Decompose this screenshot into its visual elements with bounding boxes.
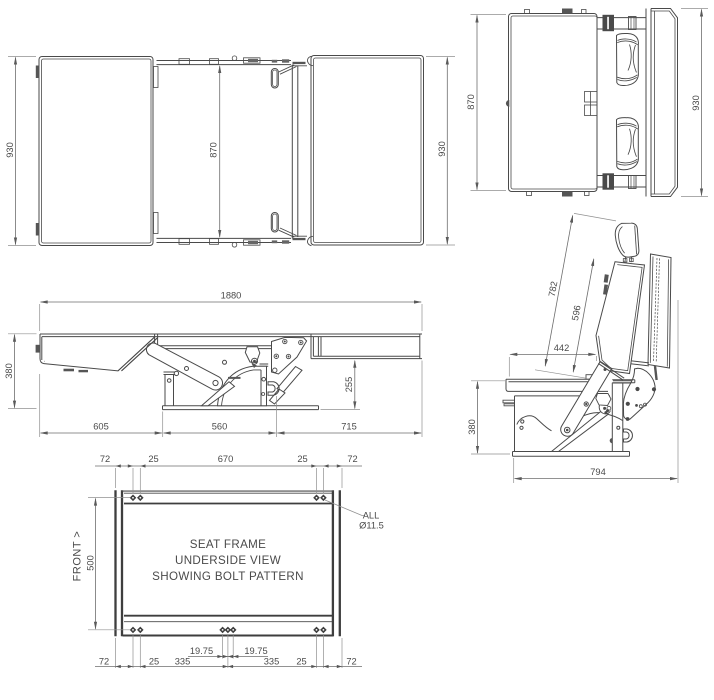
svg-text:25: 25 — [296, 656, 306, 666]
svg-text:1880: 1880 — [221, 291, 242, 301]
svg-text:19.75: 19.75 — [244, 646, 267, 656]
svg-text:670: 670 — [218, 454, 234, 464]
svg-text:380: 380 — [4, 363, 14, 379]
svg-text:72: 72 — [100, 454, 110, 464]
svg-text:19.75: 19.75 — [190, 646, 213, 656]
svg-text:930: 930 — [437, 141, 447, 157]
svg-text:25: 25 — [148, 454, 158, 464]
svg-text:72: 72 — [346, 656, 356, 666]
svg-text:SHOWING BOLT PATTERN: SHOWING BOLT PATTERN — [152, 570, 304, 583]
svg-text:794: 794 — [590, 467, 606, 477]
svg-text:25: 25 — [149, 656, 159, 666]
svg-text:FRONT >: FRONT > — [72, 531, 84, 582]
svg-text:380: 380 — [467, 419, 477, 435]
svg-text:335: 335 — [264, 656, 280, 666]
svg-text:SEAT FRAME: SEAT FRAME — [190, 538, 267, 551]
svg-text:25: 25 — [297, 454, 307, 464]
svg-text:255: 255 — [344, 377, 354, 393]
svg-text:72: 72 — [99, 656, 109, 666]
svg-text:715: 715 — [341, 422, 357, 432]
svg-text:UNDERSIDE VIEW: UNDERSIDE VIEW — [175, 554, 281, 567]
svg-text:335: 335 — [175, 656, 191, 666]
svg-text:500: 500 — [86, 555, 96, 571]
svg-text:605: 605 — [93, 422, 109, 432]
svg-text:930: 930 — [5, 142, 15, 158]
svg-text:782: 782 — [547, 280, 560, 297]
svg-text:Ø11.5: Ø11.5 — [359, 521, 384, 531]
svg-text:870: 870 — [209, 142, 219, 158]
svg-text:442: 442 — [554, 343, 570, 353]
svg-text:ALL: ALL — [363, 511, 380, 521]
svg-text:596: 596 — [570, 304, 583, 321]
svg-text:930: 930 — [691, 95, 701, 111]
svg-text:560: 560 — [212, 422, 228, 432]
svg-text:870: 870 — [466, 94, 476, 110]
svg-text:72: 72 — [347, 454, 357, 464]
